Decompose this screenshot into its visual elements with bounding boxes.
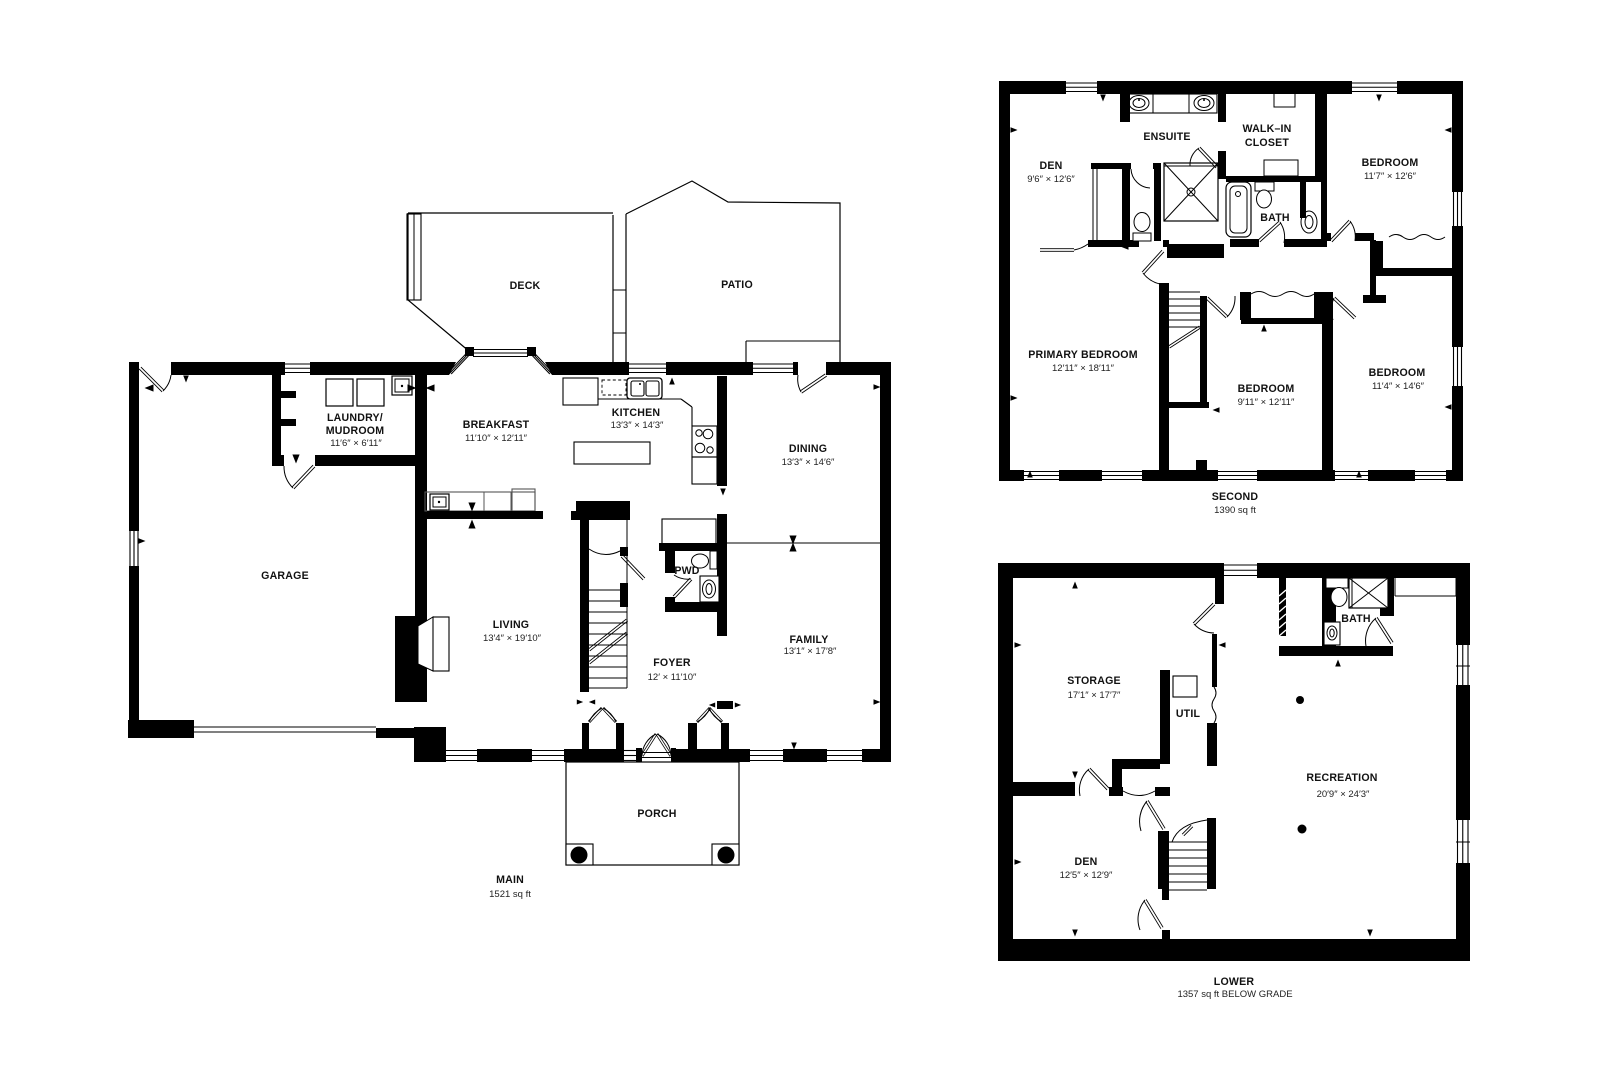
svg-text:RECREATION: RECREATION (1306, 772, 1377, 784)
svg-text:BEDROOM: BEDROOM (1362, 157, 1419, 169)
svg-text:FAMILY: FAMILY (789, 634, 828, 646)
svg-text:12′5″ × 12′9″: 12′5″ × 12′9″ (1060, 870, 1113, 881)
svg-text:LIVING: LIVING (493, 619, 530, 631)
svg-text:KITCHEN: KITCHEN (612, 407, 660, 419)
svg-text:PWD: PWD (674, 565, 699, 577)
svg-text:13′4″ × 19′10″: 13′4″ × 19′10″ (483, 633, 542, 644)
svg-text:20′9″ × 24′3″: 20′9″ × 24′3″ (1317, 789, 1370, 800)
svg-text:SECOND: SECOND (1212, 491, 1259, 503)
svg-text:13′1″ × 17′8″: 13′1″ × 17′8″ (784, 646, 837, 657)
svg-text:1357 sq ft BELOW GRADE: 1357 sq ft BELOW GRADE (1177, 989, 1292, 1000)
svg-text:DECK: DECK (510, 280, 541, 292)
svg-text:11′6″ × 6′11″: 11′6″ × 6′11″ (330, 438, 382, 449)
svg-text:ENSUITE: ENSUITE (1143, 131, 1190, 143)
svg-text:PATIO: PATIO (721, 279, 753, 291)
svg-text:DEN: DEN (1040, 160, 1063, 172)
svg-text:BATH: BATH (1260, 212, 1289, 224)
svg-text:BEDROOM: BEDROOM (1369, 367, 1426, 379)
svg-text:12′11″ × 18′11″: 12′11″ × 18′11″ (1052, 363, 1115, 374)
svg-text:11′4″ × 14′6″: 11′4″ × 14′6″ (1372, 381, 1425, 392)
svg-text:9′11″ × 12′11″: 9′11″ × 12′11″ (1238, 397, 1295, 408)
svg-text:13′3″ × 14′6″: 13′3″ × 14′6″ (782, 457, 835, 468)
svg-text:BATH: BATH (1341, 613, 1370, 625)
svg-text:BEDROOM: BEDROOM (1238, 383, 1295, 395)
svg-text:17′1″ × 17′7″: 17′1″ × 17′7″ (1068, 690, 1121, 701)
svg-text:LOWER: LOWER (1214, 976, 1255, 988)
svg-text:11′7″ × 12′6″: 11′7″ × 12′6″ (1364, 171, 1417, 182)
svg-text:UTIL: UTIL (1176, 708, 1201, 720)
svg-text:12′ × 11′10″: 12′ × 11′10″ (648, 672, 697, 683)
svg-text:PRIMARY BEDROOM: PRIMARY BEDROOM (1028, 349, 1138, 361)
svg-text:CLOSET: CLOSET (1245, 137, 1289, 149)
svg-text:BREAKFAST: BREAKFAST (463, 419, 530, 431)
svg-text:MUDROOM: MUDROOM (326, 425, 384, 437)
svg-text:MAIN: MAIN (496, 874, 524, 886)
svg-text:PORCH: PORCH (637, 808, 676, 820)
svg-text:1390 sq ft: 1390 sq ft (1214, 505, 1256, 516)
svg-text:WALK–IN: WALK–IN (1242, 123, 1291, 135)
svg-text:13′3″ × 14′3″: 13′3″ × 14′3″ (611, 420, 664, 431)
svg-text:FOYER: FOYER (653, 657, 691, 669)
svg-text:STORAGE: STORAGE (1067, 675, 1121, 687)
svg-text:GARAGE: GARAGE (261, 570, 309, 582)
svg-text:DINING: DINING (789, 443, 827, 455)
svg-text:DEN: DEN (1075, 856, 1098, 868)
svg-text:1521 sq ft: 1521 sq ft (489, 889, 531, 900)
svg-text:9′6″ × 12′6″: 9′6″ × 12′6″ (1027, 174, 1075, 185)
svg-text:LAUNDRY/: LAUNDRY/ (327, 412, 383, 424)
svg-text:11′10″ × 12′11″: 11′10″ × 12′11″ (465, 433, 528, 444)
